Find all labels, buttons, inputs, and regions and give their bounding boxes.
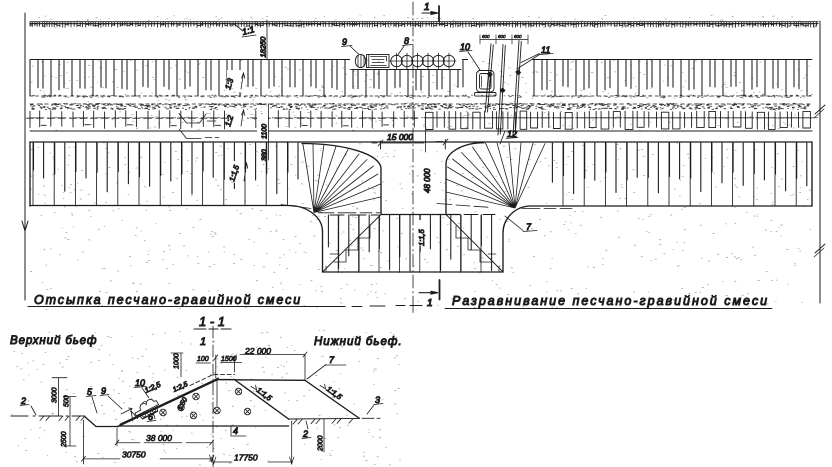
svg-text:600: 600 — [498, 34, 506, 39]
svg-text:1: 1 — [200, 336, 206, 348]
svg-text:600: 600 — [482, 34, 490, 39]
svg-text:3000: 3000 — [52, 387, 59, 403]
svg-text:100: 100 — [197, 356, 209, 363]
svg-text:1000: 1000 — [174, 353, 181, 369]
svg-text:2: 2 — [302, 429, 308, 439]
svg-text:1100: 1100 — [262, 124, 269, 139]
svg-text:Разравнивание песчано-гравийн: Разравнивание песчано-гравийной смеси — [452, 294, 769, 308]
svg-text:30750: 30750 — [122, 450, 146, 460]
svg-text:1: 1 — [427, 298, 433, 309]
svg-text:1:1,5: 1:1,5 — [417, 228, 426, 246]
svg-text:9: 9 — [101, 386, 106, 396]
svg-text:48 000: 48 000 — [423, 168, 432, 193]
svg-text:600: 600 — [514, 34, 522, 39]
svg-text:2000: 2000 — [318, 435, 325, 452]
svg-text:22 000: 22 000 — [244, 346, 271, 356]
svg-text:17750: 17750 — [234, 453, 258, 463]
svg-text:500: 500 — [64, 395, 71, 407]
svg-text:8: 8 — [404, 36, 409, 46]
svg-text:Верхний бьеф: Верхний бьеф — [10, 335, 97, 347]
svg-text:9: 9 — [342, 37, 347, 47]
svg-text:380: 380 — [262, 149, 269, 161]
svg-text:Нижний бьеф.: Нижний бьеф. — [314, 336, 403, 348]
svg-text:18250: 18250 — [259, 36, 268, 58]
svg-text:1: 1 — [424, 2, 430, 13]
svg-text:3: 3 — [375, 395, 380, 405]
svg-text:2500: 2500 — [61, 431, 68, 448]
svg-text:15 000: 15 000 — [387, 132, 413, 142]
svg-text:Отсыпка песчано-гравийной: Отсыпка песчано-гравийной смеси — [34, 293, 302, 307]
svg-text:2: 2 — [20, 396, 26, 406]
svg-text:4: 4 — [233, 426, 238, 436]
svg-text:38 000: 38 000 — [146, 433, 172, 443]
svg-text:1 - 1: 1 - 1 — [199, 314, 225, 329]
svg-text:6: 6 — [148, 412, 153, 422]
